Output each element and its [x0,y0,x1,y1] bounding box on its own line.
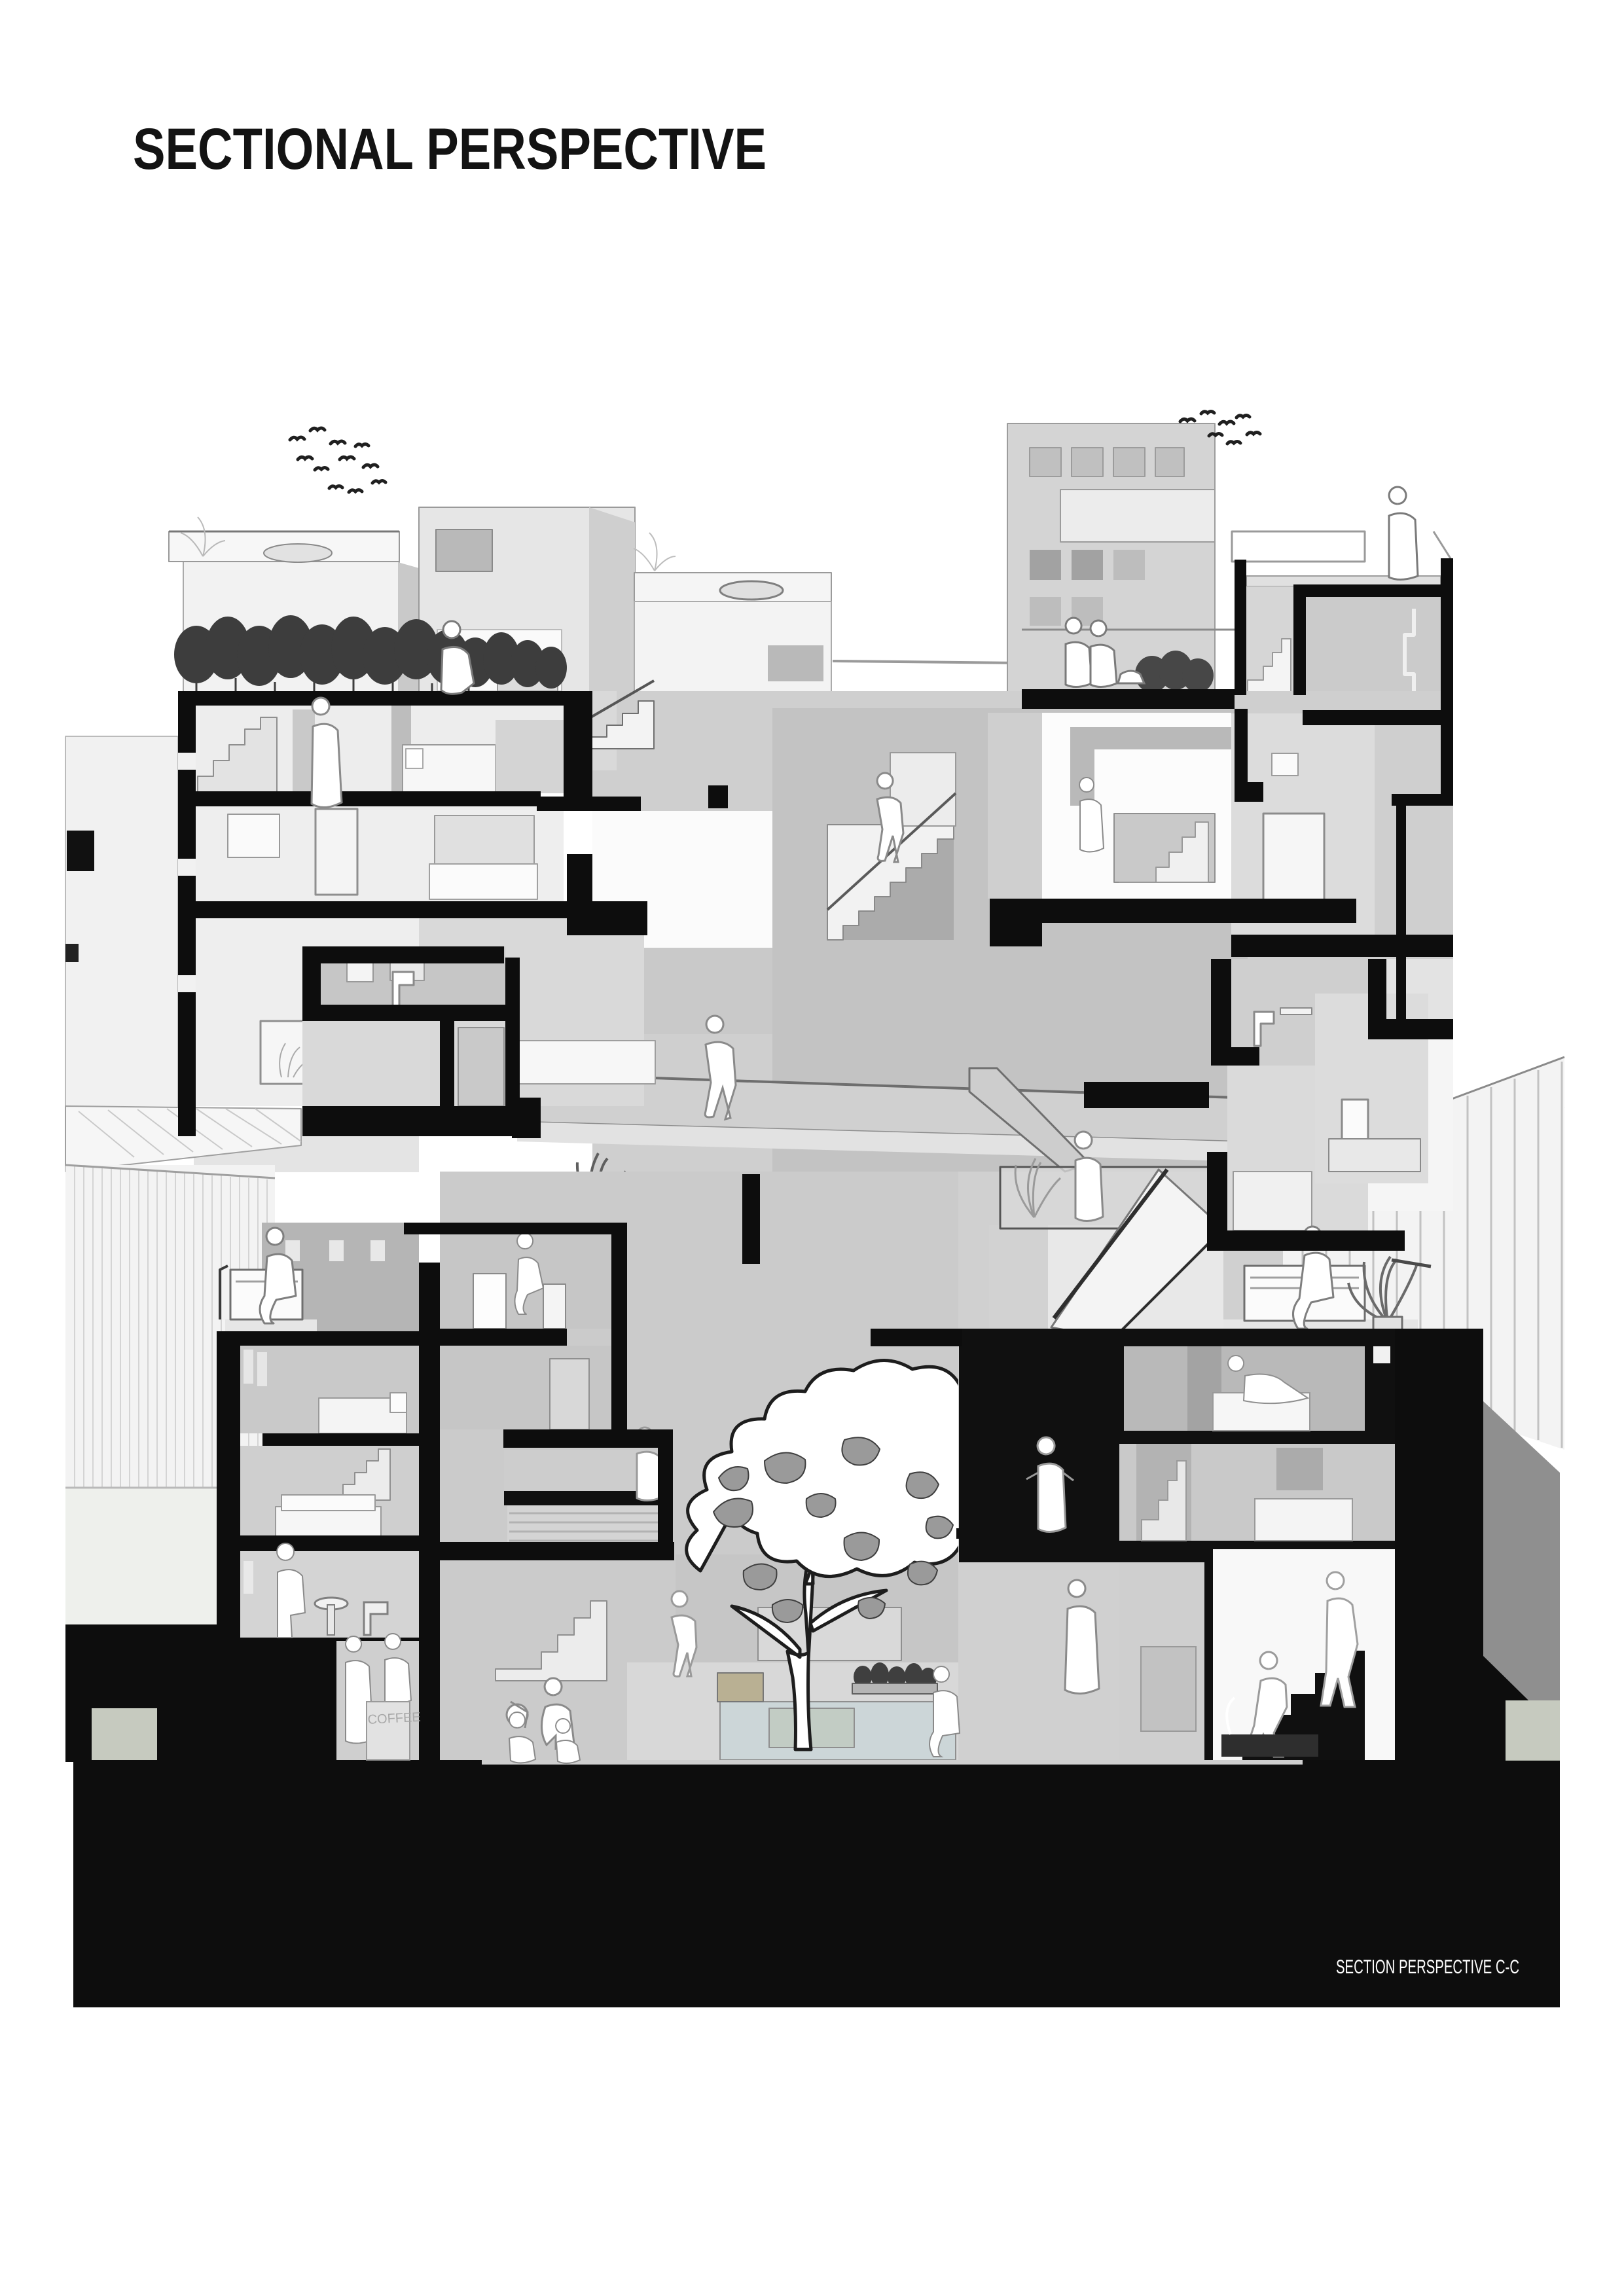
svg-text:COFFEE: COFFEE [367,1710,421,1727]
svg-text:SECTION PERSPECTIVE C-C: SECTION PERSPECTIVE C-C [1336,1956,1519,1978]
svg-text:SECTIONAL PERSPECTIVE: SECTIONAL PERSPECTIVE [133,116,767,181]
